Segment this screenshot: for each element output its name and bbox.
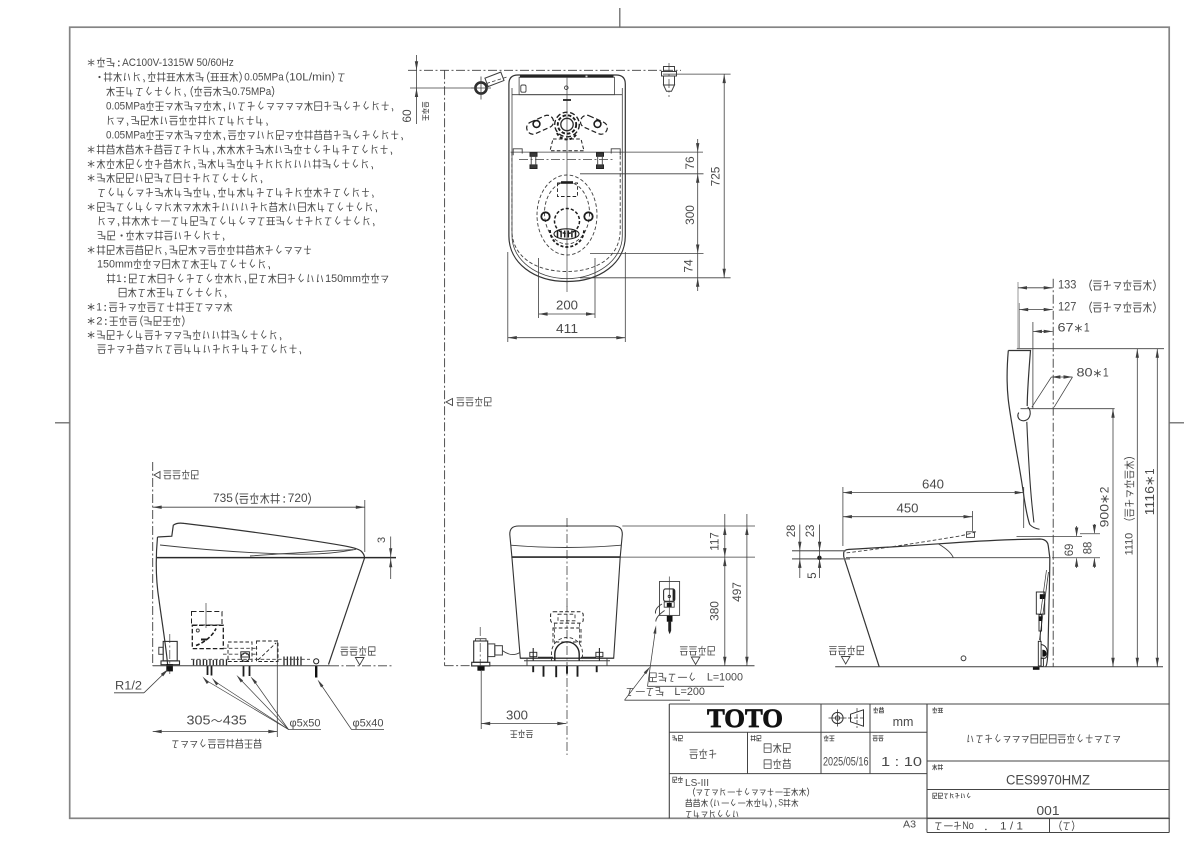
svg-text:0.75MPa: 0.75MPa xyxy=(232,86,272,98)
svg-text:300: 300 xyxy=(683,205,697,225)
svg-text:150mm: 150mm xyxy=(97,258,133,270)
svg-text:AC100V-1315W 50/60Hz: AC100V-1315W 50/60Hz xyxy=(122,57,234,69)
svg-text:1 / 1: 1 / 1 xyxy=(1000,821,1023,833)
svg-text:411: 411 xyxy=(556,322,578,336)
svg-text:435: 435 xyxy=(223,713,247,727)
svg-text:R1/2: R1/2 xyxy=(115,681,142,693)
svg-text:L=1000: L=1000 xyxy=(707,672,743,684)
svg-text:2: 2 xyxy=(1098,486,1112,493)
svg-text:LS-III: LS-III xyxy=(685,777,709,789)
svg-text:φ5x40: φ5x40 xyxy=(353,718,384,730)
svg-text:300: 300 xyxy=(506,708,528,722)
svg-text:φ5x50: φ5x50 xyxy=(290,718,321,730)
svg-text:76: 76 xyxy=(683,156,697,169)
svg-text:1110: 1110 xyxy=(1124,533,1136,556)
svg-text:0.05MPa: 0.05MPa xyxy=(106,100,146,112)
svg-text:28: 28 xyxy=(785,525,798,538)
svg-text:60: 60 xyxy=(400,109,414,122)
svg-text:720: 720 xyxy=(288,491,308,505)
svg-text:74: 74 xyxy=(682,259,696,272)
svg-text:3: 3 xyxy=(376,537,388,543)
svg-text:1116: 1116 xyxy=(1142,486,1157,515)
svg-text:L=200: L=200 xyxy=(674,686,705,698)
svg-text:725: 725 xyxy=(708,166,722,186)
svg-text:CES9970HMZ: CES9970HMZ xyxy=(1006,773,1090,788)
svg-text:200: 200 xyxy=(556,299,578,313)
svg-text:0.05MPa: 0.05MPa xyxy=(244,71,284,83)
svg-text:TOTO: TOTO xyxy=(707,704,783,733)
svg-text:1: 1 xyxy=(1142,469,1157,475)
svg-text:735: 735 xyxy=(213,491,233,505)
svg-text:88: 88 xyxy=(1082,542,1095,555)
svg-text:450: 450 xyxy=(897,501,919,515)
svg-text:2: 2 xyxy=(96,315,102,327)
svg-text:A3: A3 xyxy=(903,820,916,831)
svg-text:127: 127 xyxy=(1058,301,1076,314)
svg-text:mm: mm xyxy=(893,715,914,729)
svg-text:117: 117 xyxy=(708,532,722,551)
svg-text:23: 23 xyxy=(804,525,817,538)
svg-text:305: 305 xyxy=(187,713,211,727)
svg-text:640: 640 xyxy=(922,477,944,491)
svg-text:S: S xyxy=(778,798,783,808)
svg-text:1: 1 xyxy=(1084,322,1090,335)
svg-text:900: 900 xyxy=(1098,504,1112,528)
svg-text:1 : 10: 1 : 10 xyxy=(881,754,922,769)
svg-text:67: 67 xyxy=(1058,322,1074,335)
svg-text:10L/min: 10L/min xyxy=(289,71,331,83)
svg-text:No: No xyxy=(962,820,974,832)
svg-text:0.05MPa: 0.05MPa xyxy=(106,129,146,141)
svg-text:2025/05/16: 2025/05/16 xyxy=(823,757,869,769)
svg-text:69: 69 xyxy=(1063,544,1076,557)
svg-text:1: 1 xyxy=(116,273,122,285)
svg-text:150mm: 150mm xyxy=(325,273,361,285)
svg-text:1: 1 xyxy=(1103,367,1109,380)
svg-text:380: 380 xyxy=(708,601,722,621)
svg-text:5: 5 xyxy=(806,572,819,579)
svg-text:497: 497 xyxy=(730,582,744,602)
svg-text:001: 001 xyxy=(1037,803,1060,818)
svg-text:1: 1 xyxy=(96,301,102,313)
svg-text:133: 133 xyxy=(1058,279,1076,292)
svg-text:80: 80 xyxy=(1077,367,1094,380)
